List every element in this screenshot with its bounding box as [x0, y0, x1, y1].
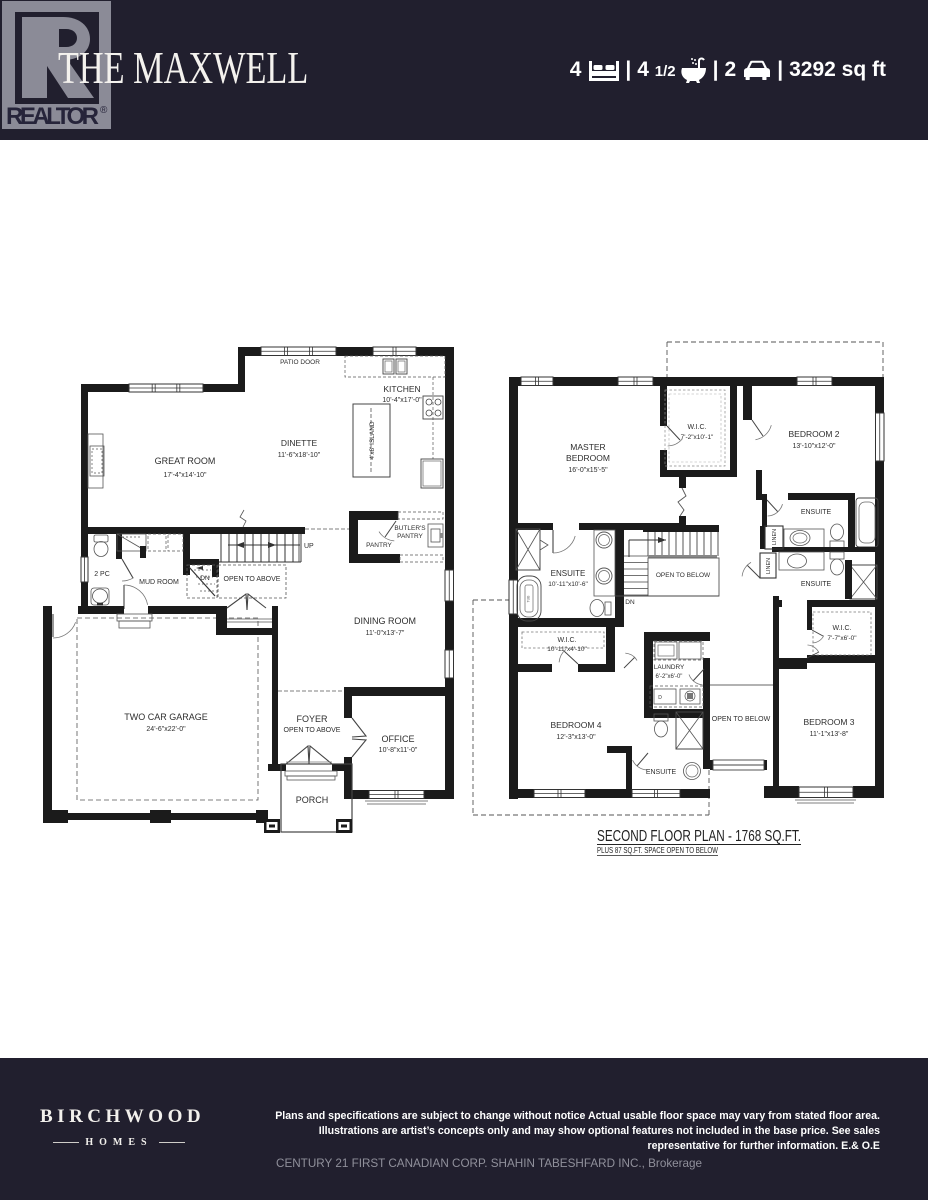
- svg-text:7'-7"x6'-0": 7'-7"x6'-0": [827, 635, 857, 642]
- svg-text:GREAT ROOM: GREAT ROOM: [155, 456, 216, 466]
- svg-text:SECOND FLOOR PLAN - 1768 SQ.FT: SECOND FLOOR PLAN - 1768 SQ.FT.: [597, 828, 801, 845]
- svg-text:OFFICE: OFFICE: [382, 734, 415, 744]
- svg-text:BEDROOM 4: BEDROOM 4: [550, 720, 601, 730]
- svg-text:PORCH: PORCH: [296, 795, 329, 805]
- svg-text:ENSUITE: ENSUITE: [801, 581, 832, 588]
- svg-text:ENSUITE: ENSUITE: [801, 509, 832, 516]
- svg-text:11'-1"x13'-8": 11'-1"x13'-8": [810, 731, 849, 738]
- svg-text:OPEN TO BELOW: OPEN TO BELOW: [712, 716, 771, 723]
- svg-text:ENSUITE: ENSUITE: [551, 569, 586, 578]
- svg-text:W.I.C.: W.I.C.: [832, 625, 851, 632]
- svg-text:LINEN: LINEN: [772, 529, 778, 545]
- svg-text:24'-6"x22'-0": 24'-6"x22'-0": [146, 726, 186, 733]
- svg-text:FOYER: FOYER: [296, 714, 328, 724]
- svg-text:17'-4"x14'-10": 17'-4"x14'-10": [163, 472, 207, 479]
- svg-text:12'-3"x13'-0": 12'-3"x13'-0": [556, 734, 596, 741]
- svg-text:MASTER: MASTER: [570, 442, 605, 452]
- svg-text:DINING ROOM: DINING ROOM: [354, 616, 416, 626]
- svg-text:2 PC: 2 PC: [94, 571, 110, 578]
- svg-text:TUB: TUB: [527, 595, 531, 603]
- svg-text:13'-10"x12'-0": 13'-10"x12'-0": [792, 443, 836, 450]
- svg-text:6'-2"x6'-0": 6'-2"x6'-0": [656, 674, 683, 680]
- svg-text:DINETTE: DINETTE: [281, 438, 318, 448]
- svg-text:PLUS 87 SQ.FT. SPACE OPEN TO B: PLUS 87 SQ.FT. SPACE OPEN TO BELOW: [597, 846, 718, 855]
- svg-text:ENSUITE: ENSUITE: [646, 769, 677, 776]
- svg-text:KITCHEN: KITCHEN: [383, 384, 420, 394]
- svg-text:®: ®: [100, 105, 108, 116]
- svg-text:LAUNDRY: LAUNDRY: [654, 664, 685, 671]
- svg-text:PANTRY: PANTRY: [397, 533, 423, 540]
- svg-text:OPEN TO ABOVE: OPEN TO ABOVE: [284, 727, 341, 734]
- svg-text:LINEN: LINEN: [766, 558, 772, 574]
- svg-text:OPEN TO ABOVE: OPEN TO ABOVE: [224, 576, 281, 583]
- svg-text:D: D: [658, 695, 662, 701]
- svg-text:W.I.C.: W.I.C.: [687, 424, 706, 431]
- svg-text:UP: UP: [304, 543, 314, 550]
- svg-text:W.I.C.: W.I.C.: [557, 637, 576, 644]
- svg-text:REALTOR: REALTOR: [6, 103, 99, 129]
- svg-text:PANTRY: PANTRY: [366, 542, 392, 549]
- svg-text:BEDROOM 2: BEDROOM 2: [788, 429, 839, 439]
- svg-text:BEDROOM: BEDROOM: [566, 453, 610, 463]
- svg-text:10'-4"x17'-0": 10'-4"x17'-0": [382, 397, 422, 404]
- svg-text:TWO CAR GARAGE: TWO CAR GARAGE: [124, 712, 208, 722]
- svg-text:DN: DN: [625, 599, 635, 606]
- svg-text:10'-11"x4'-10": 10'-11"x4'-10": [547, 646, 587, 653]
- svg-text:MUD ROOM: MUD ROOM: [139, 579, 179, 586]
- svg-text:BUTLER'S: BUTLER'S: [394, 525, 426, 532]
- svg-text:7'-2"x10'-1": 7'-2"x10'-1": [681, 434, 714, 441]
- svg-text:10'-11"x10'-6": 10'-11"x10'-6": [548, 581, 588, 588]
- svg-text:BEDROOM 3: BEDROOM 3: [803, 717, 854, 727]
- svg-text:OPEN TO BELOW: OPEN TO BELOW: [656, 572, 711, 579]
- svg-text:16'-0"x15'-5": 16'-0"x15'-5": [568, 467, 608, 474]
- svg-text:4'x8' ISLAND: 4'x8' ISLAND: [369, 421, 376, 460]
- svg-text:11'-0"x13'-7": 11'-0"x13'-7": [366, 630, 405, 637]
- svg-text:10'-8"x11'-0": 10'-8"x11'-0": [379, 747, 418, 754]
- svg-text:PATIO DOOR: PATIO DOOR: [280, 359, 320, 366]
- svg-text:11'-6"x18'-10": 11'-6"x18'-10": [278, 452, 321, 459]
- svg-text:DN: DN: [200, 575, 210, 582]
